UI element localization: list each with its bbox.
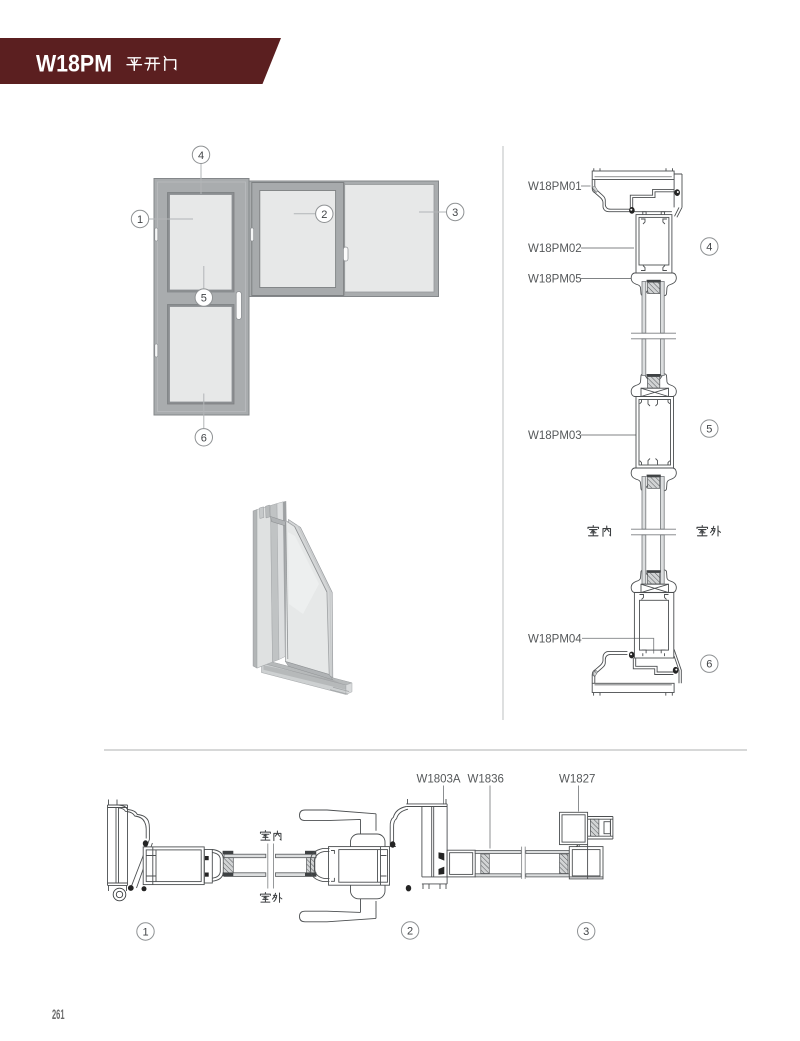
svg-text:1: 1: [137, 214, 143, 226]
svg-text:2: 2: [407, 926, 413, 938]
svg-text:W18PM01: W18PM01: [528, 181, 582, 193]
svg-text:5: 5: [201, 293, 207, 305]
svg-text:6: 6: [706, 659, 712, 671]
svg-text:3: 3: [452, 207, 458, 219]
svg-text:W18PM: W18PM: [36, 51, 112, 78]
svg-text:W18PM05: W18PM05: [528, 274, 582, 286]
svg-text:6: 6: [201, 432, 207, 444]
svg-text:261: 261: [52, 1007, 65, 1022]
svg-text:W1836: W1836: [468, 774, 504, 786]
svg-text:4: 4: [198, 150, 204, 162]
svg-text:5: 5: [706, 424, 712, 436]
svg-text:W18PM03: W18PM03: [528, 430, 582, 442]
svg-text:W18PM02: W18PM02: [528, 243, 582, 255]
svg-text:2: 2: [321, 209, 327, 221]
svg-text:3: 3: [583, 926, 589, 938]
svg-text:W1803A: W1803A: [417, 774, 461, 786]
svg-text:W1827: W1827: [559, 774, 595, 786]
svg-text:1: 1: [142, 927, 148, 939]
svg-text:W18PM04: W18PM04: [528, 634, 582, 646]
svg-text:4: 4: [706, 242, 712, 254]
